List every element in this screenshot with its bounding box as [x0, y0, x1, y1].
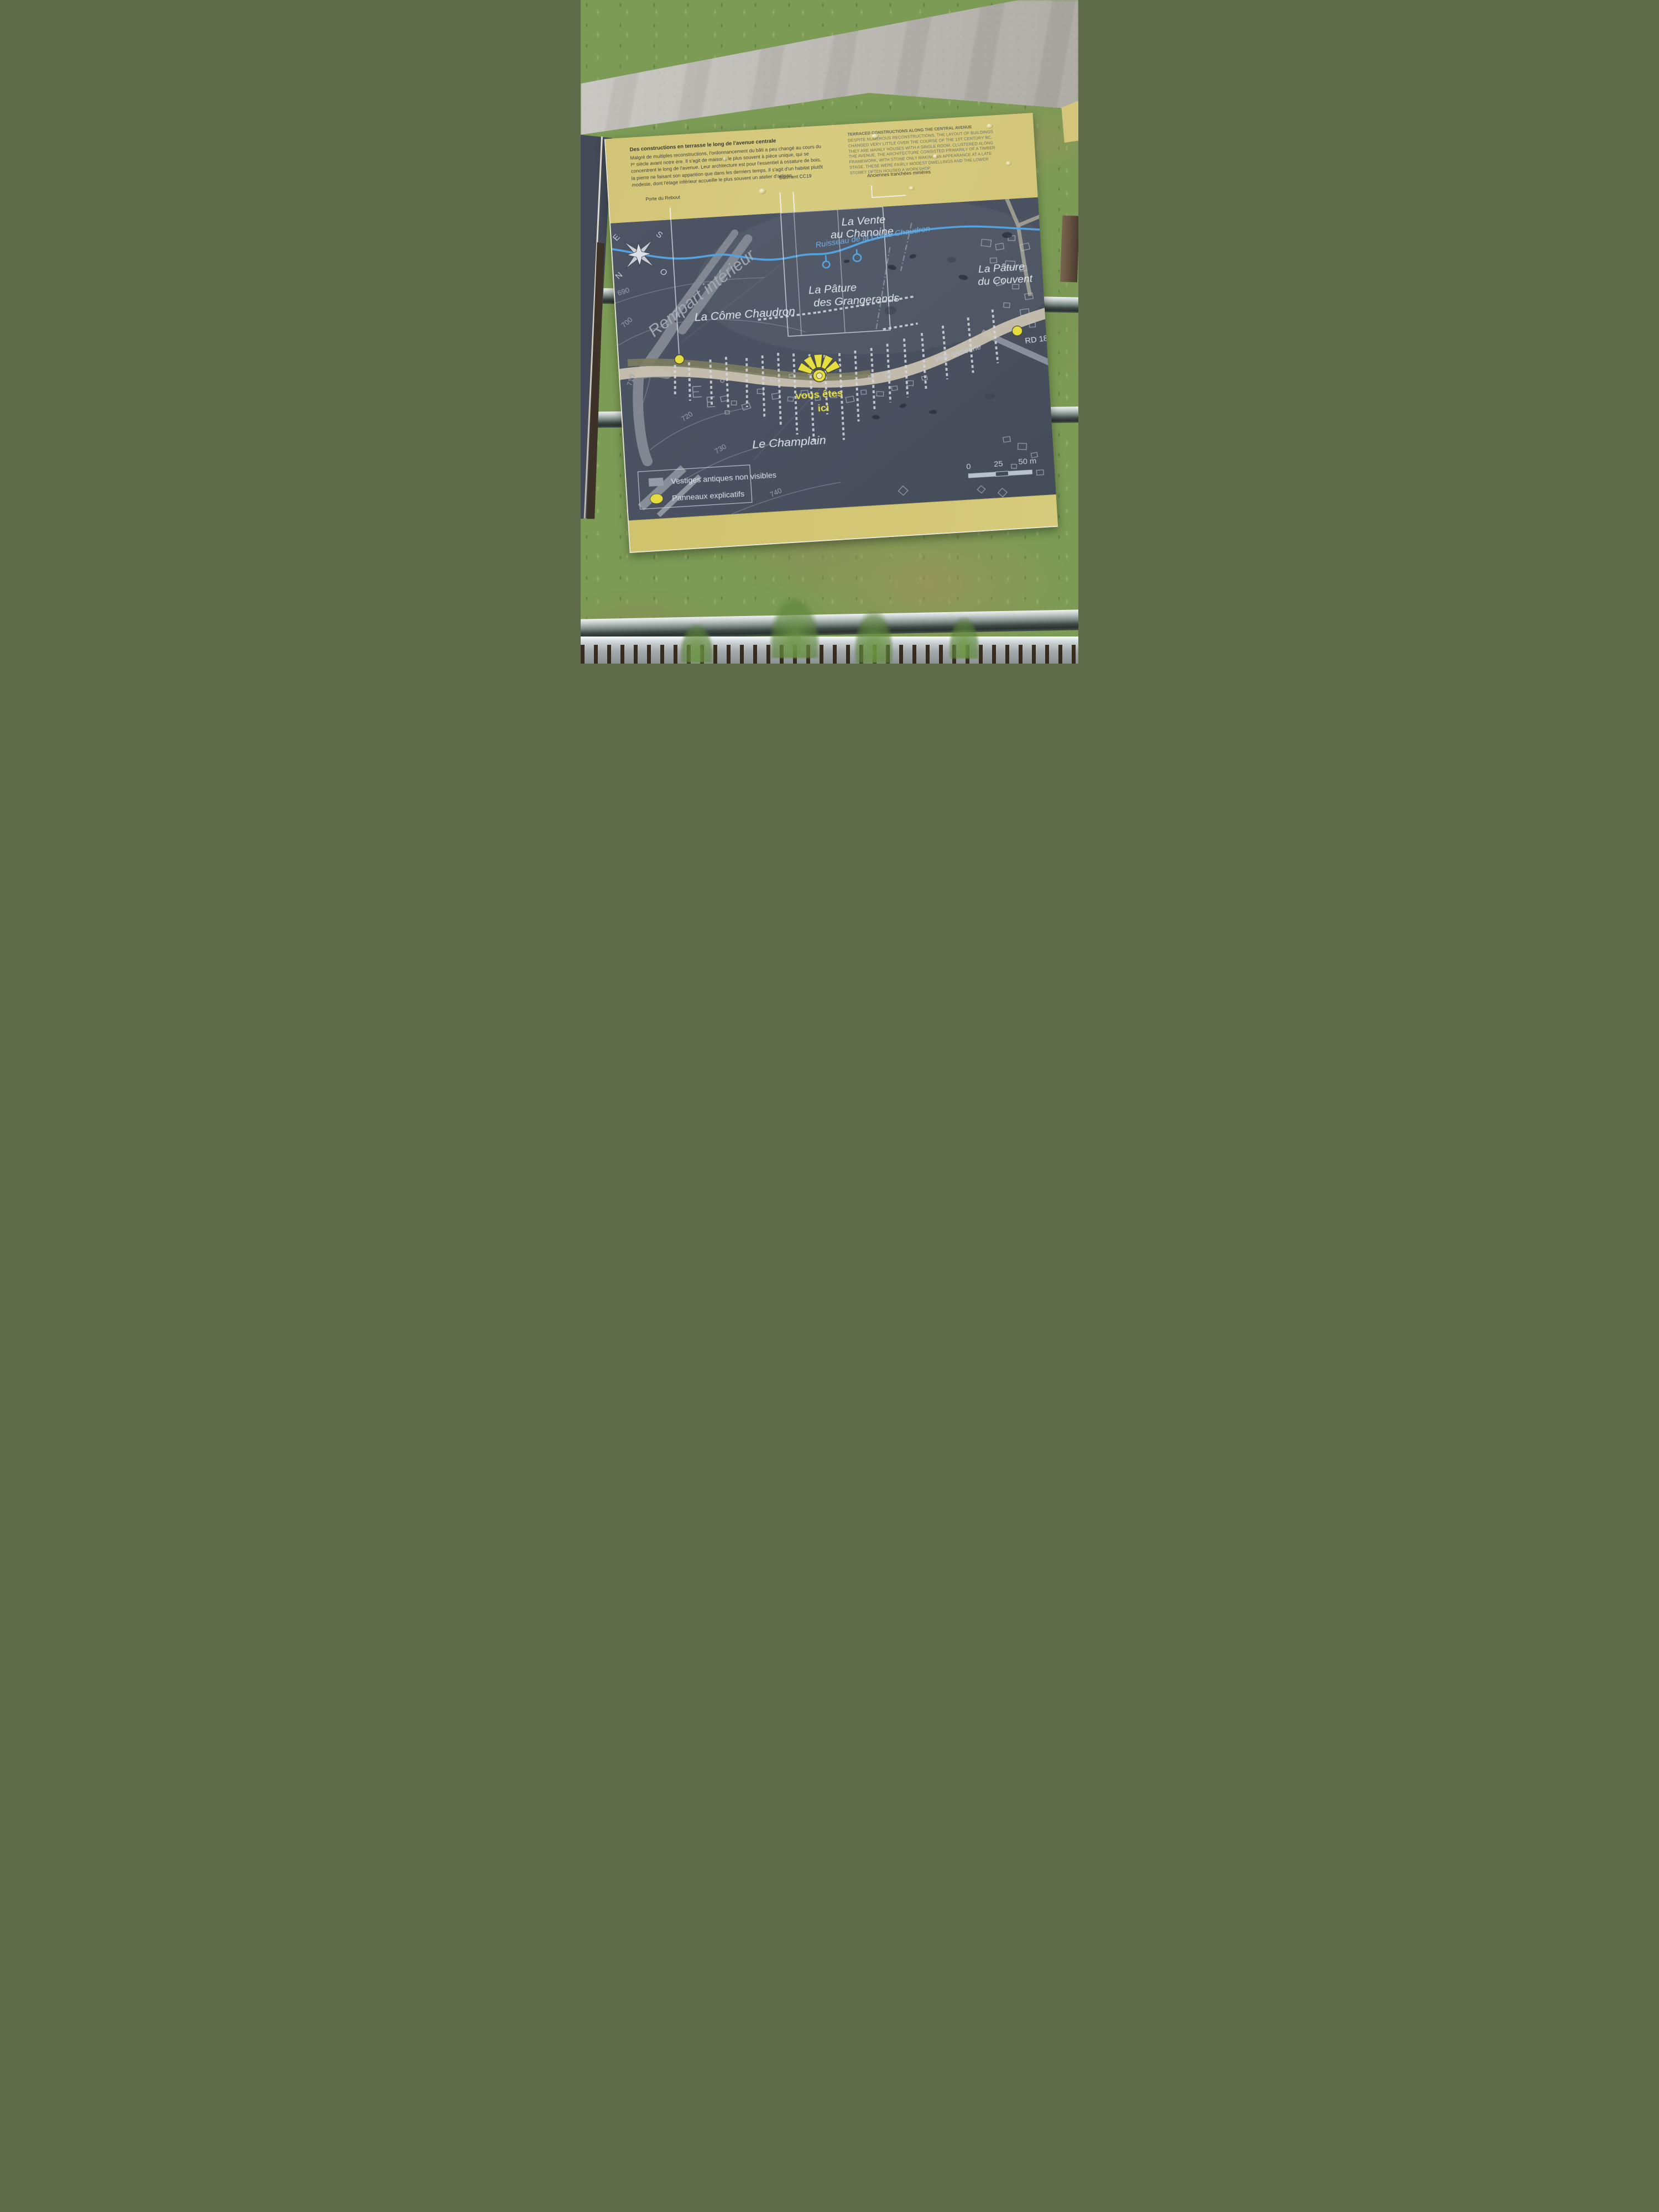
information-panel: Des constructions en terrasse le long de…: [604, 113, 1058, 553]
leader-line-cc19-b: [792, 191, 795, 212]
wooden-post-right: [1060, 216, 1078, 283]
water-droplet: [722, 156, 727, 161]
grass-tuft: [949, 617, 979, 659]
water-droplet: [909, 186, 914, 191]
callout-porte-du-rebout: Porte du Rebout: [645, 194, 680, 202]
site-map: E S O N: [611, 197, 1056, 520]
grass-tuft: [680, 624, 713, 662]
you-are-here-line2: ici: [817, 402, 830, 414]
spring-stem: [826, 255, 826, 261]
leader-line-tranchees-h: [872, 195, 906, 197]
scale-25: 25: [994, 460, 1003, 469]
photo-scene: Des constructions en terrasse le long de…: [581, 0, 1078, 664]
scale-50m: 50 m: [1018, 456, 1037, 466]
leader-line-cc19-a: [779, 192, 781, 213]
legend-swatch-vestiges: [648, 477, 663, 486]
leader-line-tranchees-v: [871, 185, 873, 197]
spring-stem: [857, 249, 857, 254]
metal-grate: [581, 637, 1078, 664]
grass-tuft: [854, 611, 893, 663]
scale-0: 0: [966, 462, 971, 471]
scale-seg-2: [995, 471, 1009, 476]
water-droplet: [1005, 161, 1011, 166]
leader-line-porte: [670, 207, 671, 219]
water-droplet: [759, 188, 766, 194]
intro-french: Des constructions en terrasse le long de…: [629, 135, 824, 189]
grass-tuft: [770, 597, 820, 658]
water-droplet: [871, 133, 879, 139]
intro-english: TERRACED CONSTRUCTIONS ALONG THE CENTRAL…: [847, 123, 999, 176]
site-map-svg: E S O N: [611, 197, 1056, 520]
